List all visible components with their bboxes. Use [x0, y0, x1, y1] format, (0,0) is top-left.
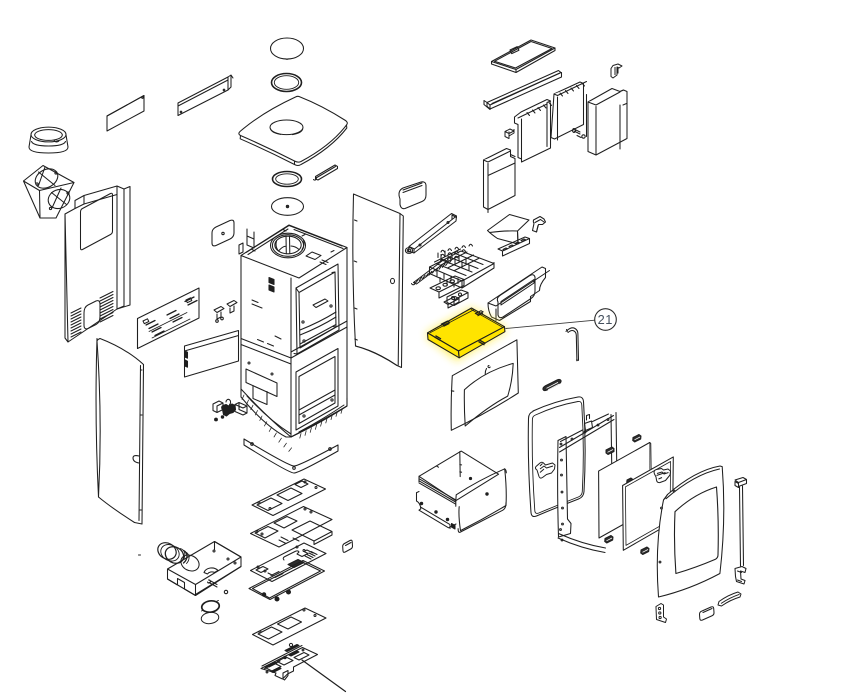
svg-text:21: 21 — [598, 312, 613, 327]
